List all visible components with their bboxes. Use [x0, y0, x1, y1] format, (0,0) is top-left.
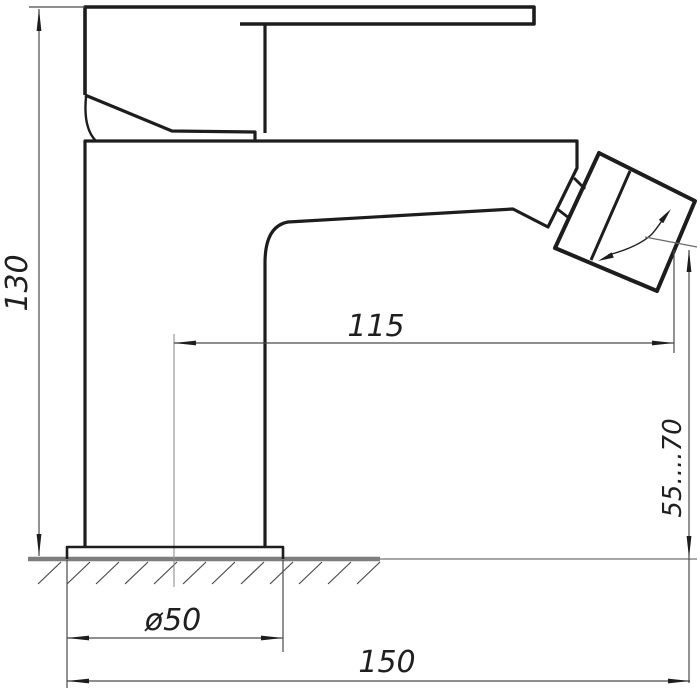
dimension-label-outlet-height: 55....70 [658, 418, 688, 517]
swivel-arrowhead-up [659, 209, 671, 223]
ground-hatching [38, 562, 380, 584]
dimension-label-overall-length: 150 [358, 645, 415, 680]
aerator-head-divider [591, 171, 630, 260]
dimension-lines [29, 7, 697, 688]
dimension-label-spout-reach: 115 [347, 309, 404, 344]
faucet-handle [85, 7, 534, 141]
dimension-label-total-height: 130 [0, 254, 35, 311]
faucet-body-and-spout [85, 141, 577, 547]
swivel-arrowhead-down [598, 252, 614, 261]
dimension-total-height [29, 7, 85, 556]
faucet-technical-drawing: 130 115 55....70 ø50 150 [0, 0, 700, 700]
handle-front-arc [85, 97, 96, 141]
outlet-leader-line [645, 237, 697, 247]
handle-underside [85, 95, 255, 141]
ground-surface [28, 559, 697, 584]
technical-drawing-page: 130 115 55....70 ø50 150 [0, 0, 700, 700]
faucet-outline [67, 7, 695, 559]
dimension-label-base-diameter: ø50 [144, 603, 202, 638]
handle-lever [85, 7, 534, 95]
